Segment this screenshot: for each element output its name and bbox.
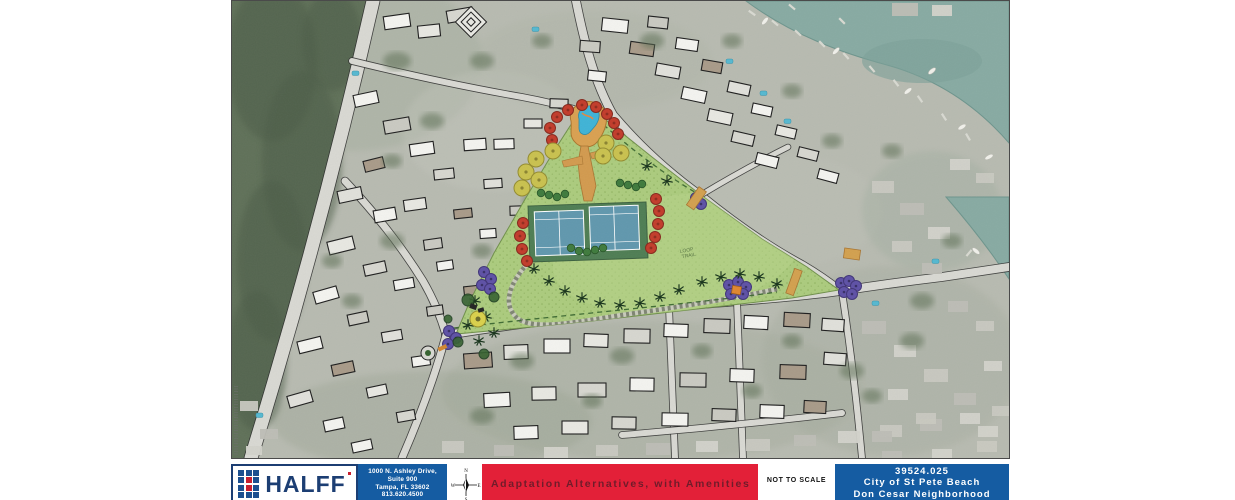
project-info: 39524.025 City of St Pete Beach Don Cesa… — [835, 464, 1009, 500]
address-line: Suite 900 — [358, 476, 447, 484]
plan-sheet: LOOP TRAIL HALFF 1000 N. Ashley Drive, S… — [0, 0, 1235, 500]
photo-grain-overlay — [232, 1, 1009, 458]
address-line: 1000 N. Ashley Drive, — [358, 468, 447, 476]
title-block: HALFF 1000 N. Ashley Drive, Suite 900 Ta… — [231, 464, 1009, 500]
address-line: 813.620.4500 — [358, 491, 447, 499]
project-neighborhood: Don Cesar Neighborhood — [835, 489, 1009, 500]
project-client: City of St Pete Beach — [835, 477, 1009, 488]
scale-note: NOT TO SCALE — [760, 464, 833, 500]
halff-logo-icon — [238, 470, 259, 499]
compass-w: W — [451, 484, 456, 489]
sheet-title: Adaptation Alternatives, with Amenities — [482, 464, 758, 500]
address-line: Tampa, FL 33602 — [358, 484, 447, 492]
compass-n: N — [464, 469, 468, 474]
registered-mark — [348, 472, 351, 475]
aerial-map: LOOP TRAIL — [231, 0, 1010, 459]
halff-logo-text: HALFF — [265, 473, 345, 496]
compass-rose: N S W E — [449, 464, 482, 500]
compass-icon — [455, 474, 477, 496]
plot-stamp-vertical-text — [234, 386, 238, 456]
compass-e: E — [477, 484, 480, 489]
halff-logo: HALFF — [231, 464, 358, 500]
project-number: 39524.025 — [835, 466, 1009, 477]
firm-address: 1000 N. Ashley Drive, Suite 900 Tampa, F… — [358, 464, 447, 500]
